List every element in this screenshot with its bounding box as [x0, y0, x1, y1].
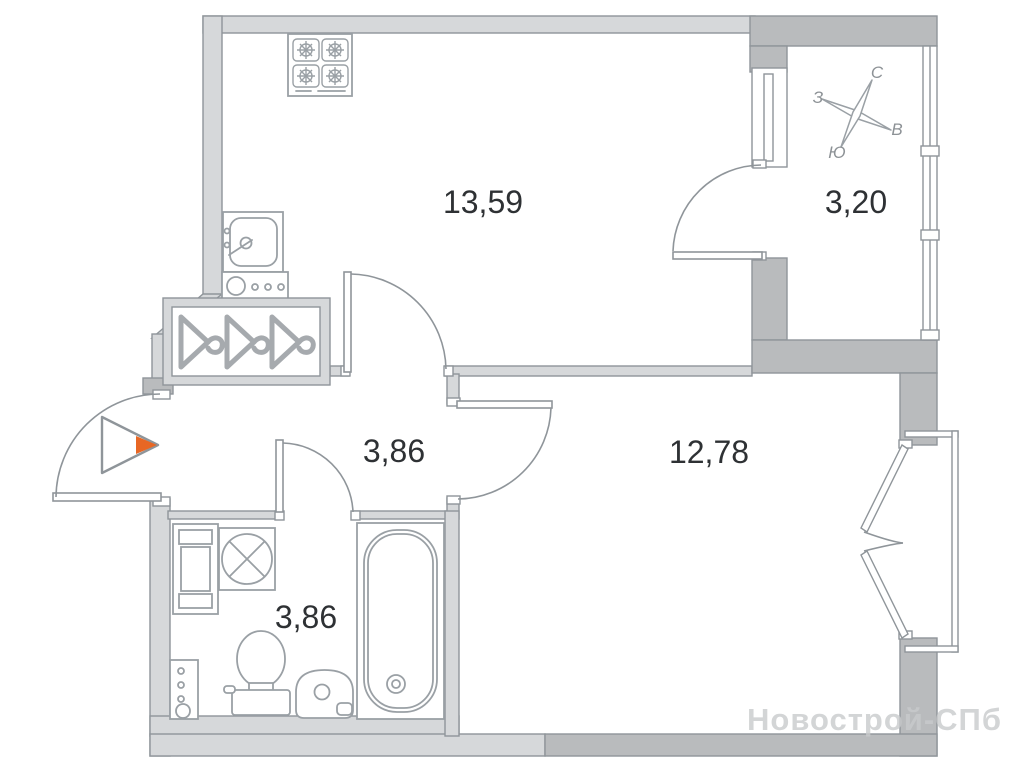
window-mullion — [921, 230, 939, 240]
compass-needle-ns — [841, 80, 872, 147]
door-swing-arc — [283, 443, 353, 512]
sink-bowl — [230, 218, 277, 266]
bath-washing-machine — [219, 528, 275, 590]
watermark-text: Новострой-СПб — [747, 702, 1002, 737]
door-swing-arc — [351, 274, 446, 369]
bay-frame-bottom — [905, 646, 958, 652]
loggia-outer-window — [921, 46, 939, 340]
riser-pipe — [178, 696, 184, 702]
door-swing-arc — [673, 165, 761, 251]
washer-dial — [227, 277, 245, 295]
riser-pipe — [178, 682, 184, 688]
riser-pipe-large — [176, 704, 190, 718]
area-label-living-room: 12,78 — [669, 434, 749, 470]
room-door — [447, 398, 552, 504]
wall-loggia-left-lower — [752, 258, 787, 340]
toilet-brush — [224, 686, 235, 693]
bathroom-door — [275, 440, 360, 520]
sink-drain — [315, 685, 330, 700]
cabinet-shelf — [179, 594, 212, 608]
wall-bath-top-right — [353, 511, 447, 519]
door-swing-arc — [458, 408, 551, 499]
plumbing-riser — [170, 660, 198, 719]
wall-bath-top-left — [168, 511, 278, 519]
bay-sash-top — [861, 445, 908, 532]
riser-pipe — [178, 668, 184, 674]
door-leaf — [457, 401, 552, 408]
wall-bottom-left — [150, 734, 545, 756]
kitchen-door — [341, 272, 453, 376]
area-label-loggia: 3,20 — [825, 184, 887, 220]
compass-rose: С З В Ю — [813, 63, 903, 162]
compass-south-label: Ю — [828, 143, 845, 162]
door-jamb — [351, 511, 360, 520]
compass-north-label: С — [871, 63, 884, 82]
compass-west-label: З — [813, 88, 824, 107]
door-jamb — [753, 160, 766, 168]
sink-tap — [225, 243, 230, 248]
door-jamb — [447, 496, 460, 504]
cabinet-shelf — [179, 530, 212, 544]
cabinet-shelf — [181, 547, 210, 591]
bathroom-cabinet — [173, 524, 218, 614]
kitchen-sink — [223, 212, 283, 272]
washer-knob — [265, 284, 271, 290]
area-label-bathroom: 3,86 — [275, 599, 337, 635]
bathroom-sink — [296, 670, 353, 718]
wall-bath-right — [445, 511, 459, 736]
bay-window — [861, 431, 958, 652]
bathtub — [357, 523, 444, 719]
toilet-tank — [232, 690, 290, 715]
bay-frame-top — [905, 431, 958, 437]
tub-drain-inner — [392, 680, 400, 688]
sink-soapdish — [337, 703, 352, 715]
wall-loggia-bottom — [752, 340, 937, 373]
loggia-door — [673, 160, 766, 260]
washer-knob — [278, 284, 284, 290]
entrance-arrow — [102, 417, 158, 473]
area-label-hallway: 3,86 — [363, 433, 425, 469]
door-leaf — [344, 272, 351, 372]
stove — [288, 34, 352, 96]
door-leaf — [673, 252, 762, 259]
compass-east-label: В — [891, 120, 902, 139]
area-label-kitchen-living: 13,59 — [443, 184, 523, 220]
window-glazing — [764, 74, 773, 161]
kitchen-loggia-window — [752, 68, 787, 167]
floor-plan-canvas: С З В Ю 13,59 3,20 3,86 12,78 3,86 Новос… — [0, 0, 1015, 768]
sink-tap — [225, 229, 230, 234]
window-mullion — [921, 330, 939, 340]
bay-frame-right — [952, 431, 958, 652]
toilet-bowl — [237, 631, 285, 687]
bay-sash-bottom — [861, 551, 908, 638]
kitchen-washing-machine — [222, 272, 288, 301]
washer-knob — [252, 284, 258, 290]
wall-top — [203, 16, 755, 33]
wardrobe — [163, 298, 330, 385]
wall-loggia-top — [750, 16, 937, 46]
bay-sash-swing-top — [864, 532, 903, 543]
window-mullion — [921, 146, 939, 156]
wall-kitchen-bottom — [445, 366, 752, 376]
wall-kitchen-left — [203, 16, 222, 308]
toilet — [224, 631, 290, 715]
bay-sash-swing-bottom — [864, 543, 903, 551]
floor-plan-drawing: С З В Ю 13,59 3,20 3,86 12,78 3,86 Новос… — [0, 0, 1015, 768]
door-leaf — [276, 440, 283, 512]
wall-bottom-right — [545, 734, 937, 756]
door-leaf — [53, 493, 161, 501]
